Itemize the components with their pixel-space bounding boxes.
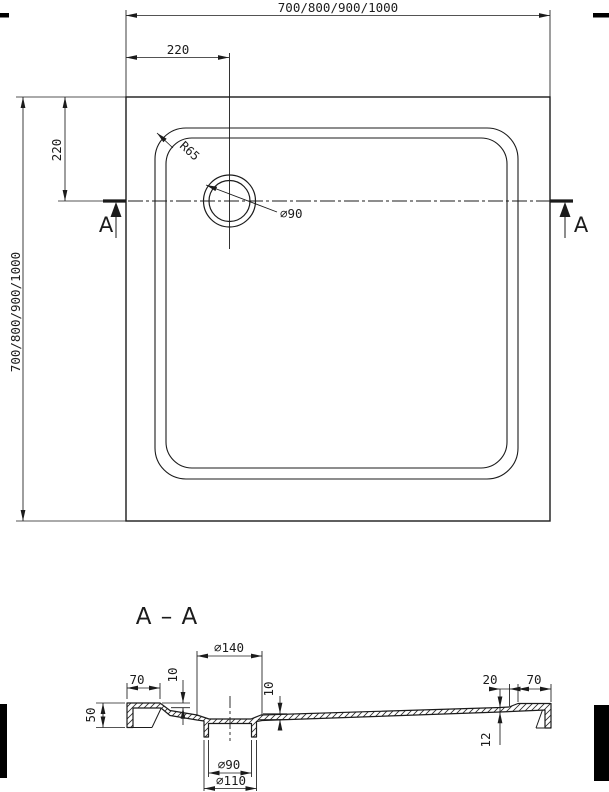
centerlines [104,53,572,249]
section-letter-right: A [574,213,589,237]
section-view: A – A [83,604,551,791]
depth-right-label: 10 [261,681,276,696]
tray-outer-square [126,97,550,521]
basin-rim-edge [155,128,518,479]
edge-height-label: 50 [83,707,98,722]
section-letter-left: A [99,213,114,237]
shower-tray-technical-drawing: 700/800/900/1000 220 700/800/900/1000 22… [0,0,609,792]
top-view: 700/800/900/1000 220 700/800/900/1000 22… [8,0,589,521]
drain-spigot-diameter-label: ⌀110 [216,773,246,788]
dim-drain-y-label: 220 [49,139,64,162]
dim-drain-x-label: 220 [167,42,190,57]
section-title: A – A [136,604,199,630]
drain-diameter-label: ⌀90 [280,206,303,221]
drain-hole-diameter-label: ⌀90 [218,757,241,772]
top-view-dimension-lines [16,10,550,521]
section-arrow-right [560,202,571,217]
recess-diameter-label: ⌀140 [214,640,244,655]
drain-leader-line [206,185,277,212]
top-view-arrowheads [21,13,550,521]
crop-mark-bottom-right [594,705,609,781]
basin-floor-edge [166,138,507,468]
rim-width-left-label: 70 [129,672,144,687]
edge-offset-right-label: 20 [482,672,497,687]
dim-height-label: 700/800/900/1000 [8,252,23,372]
depth-left-label: 10 [165,667,180,682]
crop-mark-bottom-left [0,704,7,778]
section-cut-markers [103,201,573,238]
corner-radius-label: R65 [177,139,202,164]
crop-mark-top-left [0,13,9,18]
dim-width-label: 700/800/900/1000 [278,0,398,15]
rim-width-right-label: 70 [526,672,541,687]
technical-drawing-page: 700/800/900/1000 220 700/800/900/1000 22… [0,0,609,792]
crop-mark-top-right [593,13,609,18]
tray-shell-cross-section [127,703,551,737]
floor-thickness-label: 12 [478,732,493,747]
